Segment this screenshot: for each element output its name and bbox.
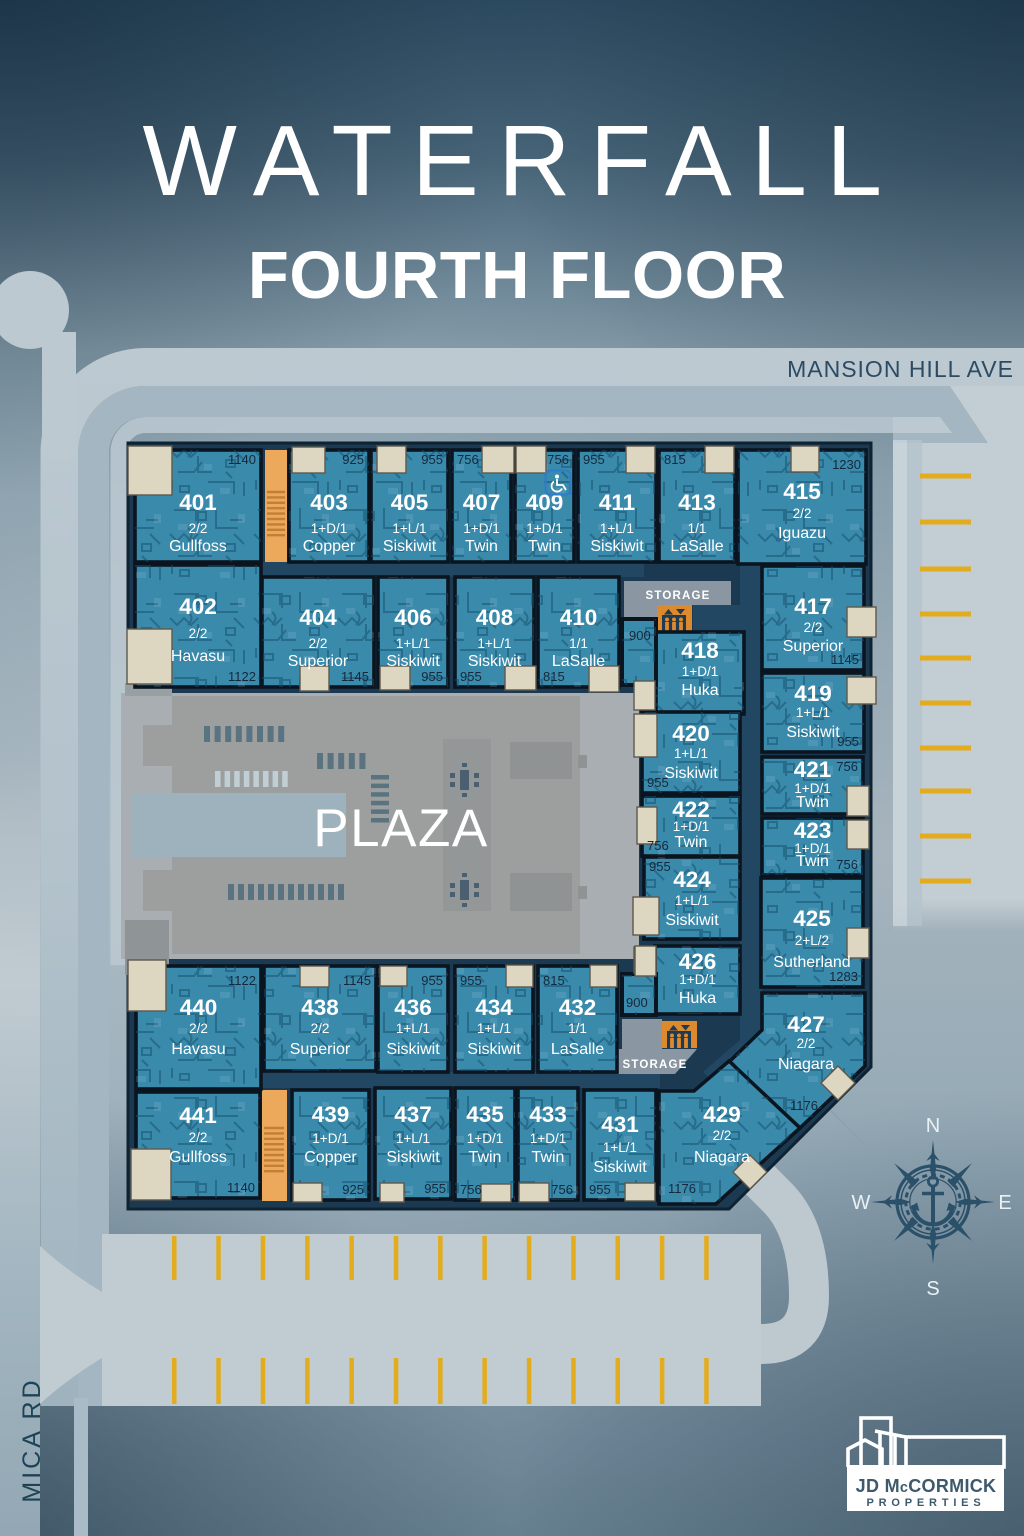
svg-text:1+D/1: 1+D/1 [682,664,718,679]
svg-text:756: 756 [457,452,479,467]
svg-text:433: 433 [529,1102,567,1127]
svg-text:955: 955 [421,973,443,988]
svg-text:955: 955 [647,775,669,790]
svg-text:815: 815 [543,669,565,684]
svg-text:417: 417 [794,594,832,619]
svg-text:425: 425 [793,906,831,931]
svg-text:410: 410 [560,605,598,630]
svg-text:1+D/1: 1+D/1 [673,819,709,834]
svg-text:E: E [998,1192,1011,1214]
svg-text:2/2: 2/2 [797,1036,816,1051]
svg-text:408: 408 [476,605,514,630]
svg-text:1176: 1176 [668,1181,696,1196]
svg-text:1+D/1: 1+D/1 [311,521,347,536]
svg-text:Siskiwit: Siskiwit [386,1149,440,1166]
svg-text:1+D/1: 1+D/1 [463,521,499,536]
svg-text:2+L/2: 2+L/2 [795,933,829,948]
svg-text:Siskiwit: Siskiwit [467,1041,521,1058]
svg-text:1+L/1: 1+L/1 [674,746,708,761]
svg-text:1+L/1: 1+L/1 [392,521,426,536]
svg-text:955: 955 [460,973,482,988]
svg-text:756: 756 [551,1182,573,1197]
svg-text:411: 411 [599,490,635,515]
svg-text:955: 955 [583,452,605,467]
svg-text:1122: 1122 [228,973,256,988]
svg-text:2/2: 2/2 [189,1021,208,1036]
svg-text:Siskiwit: Siskiwit [665,912,719,929]
svg-text:Superior: Superior [290,1041,351,1058]
svg-text:900: 900 [626,995,648,1010]
svg-text:2/2: 2/2 [713,1128,732,1143]
svg-text:815: 815 [664,452,686,467]
svg-text:Twin: Twin [796,794,829,811]
svg-text:W: W [852,1192,871,1214]
svg-text:1+D/1: 1+D/1 [679,972,715,987]
svg-text:756: 756 [836,759,858,774]
svg-text:815: 815 [543,973,565,988]
svg-text:Twin: Twin [796,853,829,870]
svg-text:1+L/1: 1+L/1 [796,705,830,720]
svg-text:1140: 1140 [227,1180,255,1195]
svg-text:1145: 1145 [343,973,371,988]
svg-text:1283: 1283 [829,969,858,984]
svg-text:Twin: Twin [532,1149,565,1166]
svg-text:406: 406 [394,605,432,630]
svg-text:Copper: Copper [304,1149,357,1166]
svg-text:925: 925 [342,1182,364,1197]
svg-text:1/1: 1/1 [569,636,588,651]
svg-text:756: 756 [836,857,858,872]
svg-text:Gullfoss: Gullfoss [169,1149,227,1166]
svg-text:432: 432 [559,995,597,1020]
svg-text:423: 423 [794,818,832,843]
svg-text:LaSalle: LaSalle [552,653,605,670]
svg-text:955: 955 [649,859,671,874]
svg-text:436: 436 [394,995,432,1020]
svg-text:1+L/1: 1+L/1 [396,636,430,651]
svg-text:1+L/1: 1+L/1 [603,1140,637,1155]
svg-text:403: 403 [310,490,348,515]
svg-text:1+L/1: 1+L/1 [477,636,511,651]
svg-text:2/2: 2/2 [311,1021,330,1036]
svg-text:STORAGE: STORAGE [645,590,710,602]
svg-text:1+D/1: 1+D/1 [526,521,562,536]
svg-text:Copper: Copper [303,538,356,555]
svg-text:407: 407 [463,490,501,515]
svg-text:Siskiwit: Siskiwit [664,765,718,782]
svg-text:MICA RD: MICA RD [18,1377,46,1502]
svg-text:756: 756 [547,452,569,467]
svg-text:Twin: Twin [528,538,561,555]
svg-text:S: S [926,1278,939,1300]
svg-text:401: 401 [179,490,217,515]
svg-text:Siskiwit: Siskiwit [786,724,840,741]
svg-text:756: 756 [460,1182,482,1197]
svg-text:402: 402 [179,594,217,619]
svg-text:1+D/1: 1+D/1 [312,1131,348,1146]
svg-text:LaSalle: LaSalle [670,538,723,555]
svg-text:Siskiwit: Siskiwit [590,538,644,555]
svg-text:1230: 1230 [832,457,861,472]
svg-text:1/1: 1/1 [688,521,707,536]
svg-text:424: 424 [673,867,711,892]
svg-text:1+L/1: 1+L/1 [396,1021,430,1036]
svg-text:420: 420 [672,721,710,746]
svg-text:Siskiwit: Siskiwit [386,653,440,670]
svg-text:1145: 1145 [341,669,369,684]
svg-text:1+L/1: 1+L/1 [477,1021,511,1036]
svg-text:1+D/1: 1+D/1 [530,1131,566,1146]
svg-text:925: 925 [342,452,364,467]
svg-text:STORAGE: STORAGE [622,1059,687,1071]
svg-text:Iguazu: Iguazu [778,525,826,542]
svg-text:955: 955 [421,669,443,684]
svg-text:1+L/1: 1+L/1 [396,1131,430,1146]
svg-text:1176: 1176 [790,1098,818,1113]
svg-text:WATERFALL: WATERFALL [143,105,902,217]
svg-text:429: 429 [703,1102,741,1127]
svg-text:Siskiwit: Siskiwit [383,538,437,555]
svg-text:438: 438 [301,995,339,1020]
svg-text:Havasu: Havasu [171,1041,225,1058]
svg-text:955: 955 [424,1181,446,1196]
svg-text:1+L/1: 1+L/1 [600,521,634,536]
svg-text:419: 419 [794,681,832,706]
svg-text:Niagara: Niagara [694,1149,750,1166]
svg-text:440: 440 [180,995,218,1020]
svg-text:431: 431 [601,1112,639,1137]
svg-text:413: 413 [678,490,716,515]
svg-text:Twin: Twin [469,1149,502,1166]
svg-text:2/2: 2/2 [189,521,208,536]
svg-text:Huka: Huka [679,990,716,1007]
svg-text:405: 405 [391,490,429,515]
svg-text:955: 955 [460,669,482,684]
svg-text:1/1: 1/1 [568,1021,587,1036]
svg-text:PROPERTIES: PROPERTIES [867,1497,986,1509]
svg-text:1+D/1: 1+D/1 [467,1131,503,1146]
svg-text:Siskiwit: Siskiwit [386,1041,440,1058]
svg-text:404: 404 [299,605,337,630]
svg-text:N: N [926,1115,940,1137]
svg-text:426: 426 [679,949,717,974]
svg-text:2/2: 2/2 [309,636,328,651]
svg-text:955: 955 [837,734,859,749]
svg-text:FOURTH FLOOR: FOURTH FLOOR [248,238,786,313]
svg-text:756: 756 [647,838,669,853]
svg-text:2/2: 2/2 [804,620,823,635]
svg-text:435: 435 [466,1102,504,1127]
svg-text:Superior: Superior [288,653,349,670]
svg-text:Twin: Twin [675,834,708,851]
svg-text:434: 434 [475,995,513,1020]
svg-text:Twin: Twin [465,538,498,555]
svg-text:LaSalle: LaSalle [551,1041,604,1058]
svg-text:900: 900 [629,628,651,643]
svg-text:955: 955 [421,452,443,467]
svg-text:441: 441 [179,1103,217,1128]
svg-text:2/2: 2/2 [189,626,208,641]
svg-text:Siskiwit: Siskiwit [468,653,522,670]
svg-text:2/2: 2/2 [189,1130,208,1145]
svg-text:2/2: 2/2 [793,506,812,521]
svg-text:421: 421 [794,757,832,782]
svg-text:Gullfoss: Gullfoss [169,538,227,555]
svg-text:955: 955 [589,1182,611,1197]
svg-text:MANSION HILL AVE: MANSION HILL AVE [787,356,1014,382]
svg-text:Huka: Huka [681,682,718,699]
svg-text:1+L/1: 1+L/1 [675,893,709,908]
svg-text:PLAZA: PLAZA [313,799,488,858]
svg-text:JD McCORMICK: JD McCORMICK [856,1476,997,1496]
svg-text:437: 437 [394,1102,432,1127]
svg-text:1145: 1145 [831,652,859,667]
svg-text:Siskiwit: Siskiwit [593,1159,647,1176]
svg-text:415: 415 [783,479,821,504]
svg-text:Havasu: Havasu [171,648,225,665]
svg-text:418: 418 [681,638,719,663]
svg-text:1122: 1122 [228,669,256,684]
svg-text:1140: 1140 [228,452,256,467]
svg-text:Niagara: Niagara [778,1056,834,1073]
svg-text:439: 439 [312,1102,350,1127]
svg-text:427: 427 [787,1012,825,1037]
